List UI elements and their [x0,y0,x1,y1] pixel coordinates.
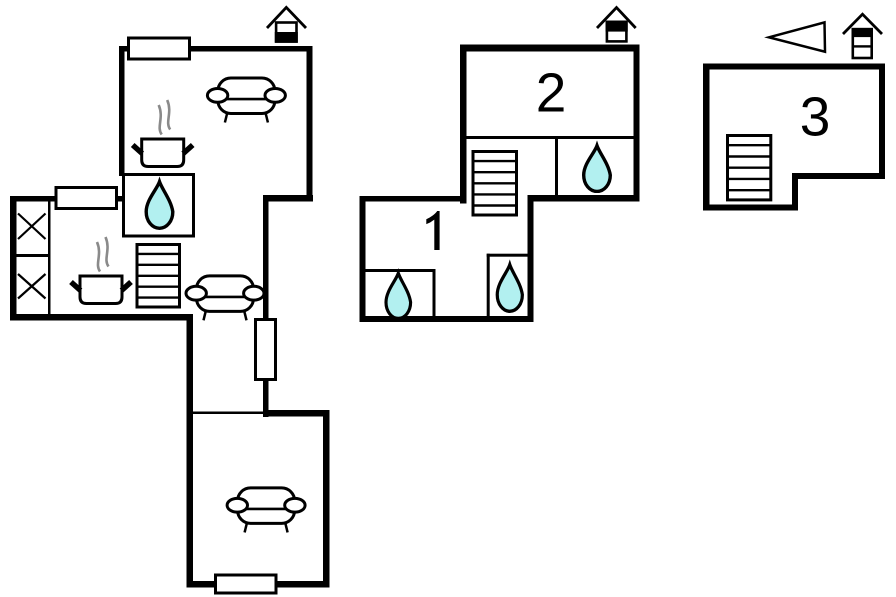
svg-text:2: 2 [536,62,567,124]
svg-text:3: 3 [800,86,831,148]
